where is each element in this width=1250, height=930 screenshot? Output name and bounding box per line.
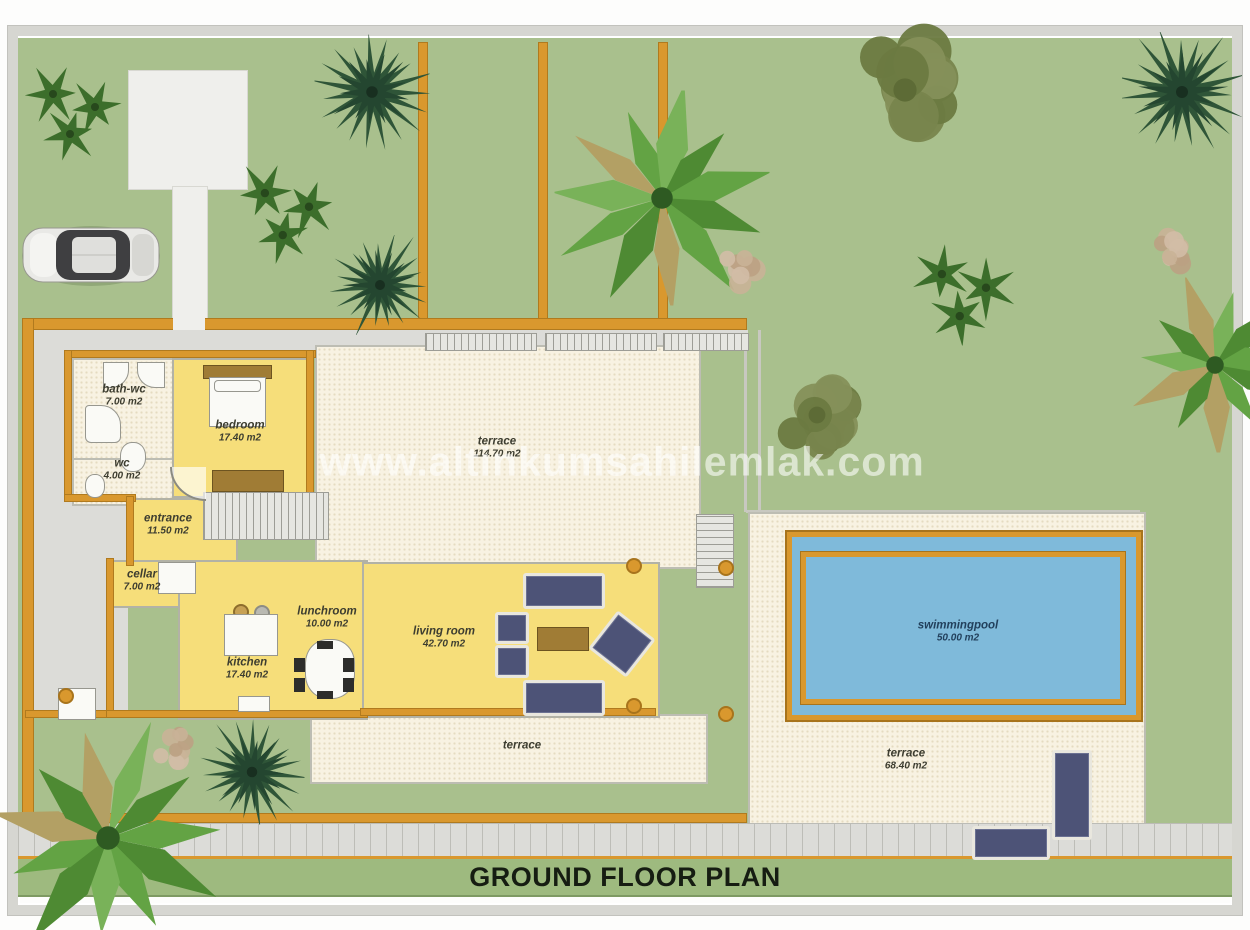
cellar-cabinet — [158, 562, 196, 594]
coffee-table — [537, 627, 589, 651]
driveway-pad — [128, 70, 248, 190]
dining-chair — [343, 658, 354, 672]
garden-stairs-1 — [425, 333, 537, 351]
sun-lounger-horizontal — [972, 826, 1050, 860]
car — [20, 222, 162, 288]
tree-conifer — [315, 35, 430, 150]
armchair-1 — [495, 612, 529, 644]
interior-stairs — [203, 492, 329, 540]
plan-title: GROUND FLOOR PLAN — [469, 862, 781, 893]
plot-wall-bottom — [25, 813, 747, 823]
dining-chair — [294, 658, 305, 672]
kitchen-wall-west — [106, 558, 114, 718]
tree-conifer — [200, 720, 305, 825]
dining-chair — [294, 678, 305, 692]
tree-gravel — [707, 242, 767, 302]
bedroom-wall-east — [306, 350, 314, 502]
garden-fence-2 — [538, 42, 548, 320]
pergola-column — [58, 688, 74, 704]
tree-gravel — [145, 720, 200, 775]
floor-plan-page: GROUND FLOOR PLAN — [0, 0, 1250, 930]
armchair-2 — [495, 645, 529, 678]
tree-palm — [1128, 278, 1250, 453]
entrance-wall-west — [126, 496, 134, 566]
pergola-column — [718, 706, 734, 722]
garden-stairs-2 — [545, 333, 657, 351]
sofa-top — [523, 573, 605, 609]
tree-bush — [913, 241, 1018, 346]
kitchen-counter — [224, 614, 278, 656]
room-label-bath-wc: bath-wc 7.00 m2 — [102, 383, 145, 408]
room-label-entrance: entrance 11.50 m2 — [144, 512, 192, 537]
house-wall-west — [64, 350, 72, 502]
tree-gravel — [1139, 223, 1197, 281]
sun-lounger-vertical — [1052, 750, 1092, 840]
room-label-bedroom: bedroom 17.40 m2 — [215, 419, 264, 444]
bathtub — [85, 405, 121, 443]
plot-wall-left — [22, 318, 34, 825]
title-bar: GROUND FLOOR PLAN — [18, 855, 1232, 897]
wardrobe — [212, 470, 284, 492]
tree-conifer — [1122, 32, 1242, 152]
living-wall-south — [360, 708, 656, 716]
site-plan: bath-wc 7.00 m2 wc 4.00 m2 bedroom 17.40… — [18, 38, 1232, 855]
pergola-column — [718, 560, 734, 576]
gate-gap — [173, 318, 205, 330]
kitchen-wall-south — [106, 710, 368, 718]
garden-stairs-3 — [663, 333, 749, 351]
tree-bush — [236, 160, 341, 265]
tree-bush — [25, 62, 125, 162]
dishwasher — [238, 696, 270, 712]
room-label-terrace-pool: terrace 68.40 m2 — [885, 747, 927, 772]
room-label-living-room: living room 42.70 m2 — [413, 625, 475, 650]
room-label-kitchen: kitchen 17.40 m2 — [226, 656, 268, 681]
driveway-path — [172, 186, 208, 334]
pergola-column — [626, 698, 642, 714]
tree-olive — [833, 18, 978, 163]
room-label-swimmingpool: swimmingpool 50.00 m2 — [918, 619, 999, 644]
house-wall-top — [64, 350, 316, 358]
dining-chair — [343, 678, 354, 692]
pool-stairs — [696, 514, 734, 588]
sofa-bottom — [523, 680, 605, 716]
room-label-lunchroom: lunchroom 10.00 m2 — [297, 605, 356, 630]
plot-wall-top — [25, 318, 747, 330]
bed-pillow — [214, 380, 261, 392]
toilet-wc — [85, 474, 105, 498]
watermark: www.altinkumsahilemlak.com — [319, 439, 925, 486]
garden-fence-1 — [418, 42, 428, 320]
pergola-column — [626, 558, 642, 574]
garden-fence-3 — [658, 42, 668, 320]
room-label-cellar: cellar 7.00 m2 — [124, 568, 161, 593]
dining-chair — [317, 641, 333, 649]
dining-chair — [317, 691, 333, 699]
room-label-terrace-bottom: terrace — [503, 739, 541, 752]
room-label-wc: wc 4.00 m2 — [104, 457, 141, 482]
